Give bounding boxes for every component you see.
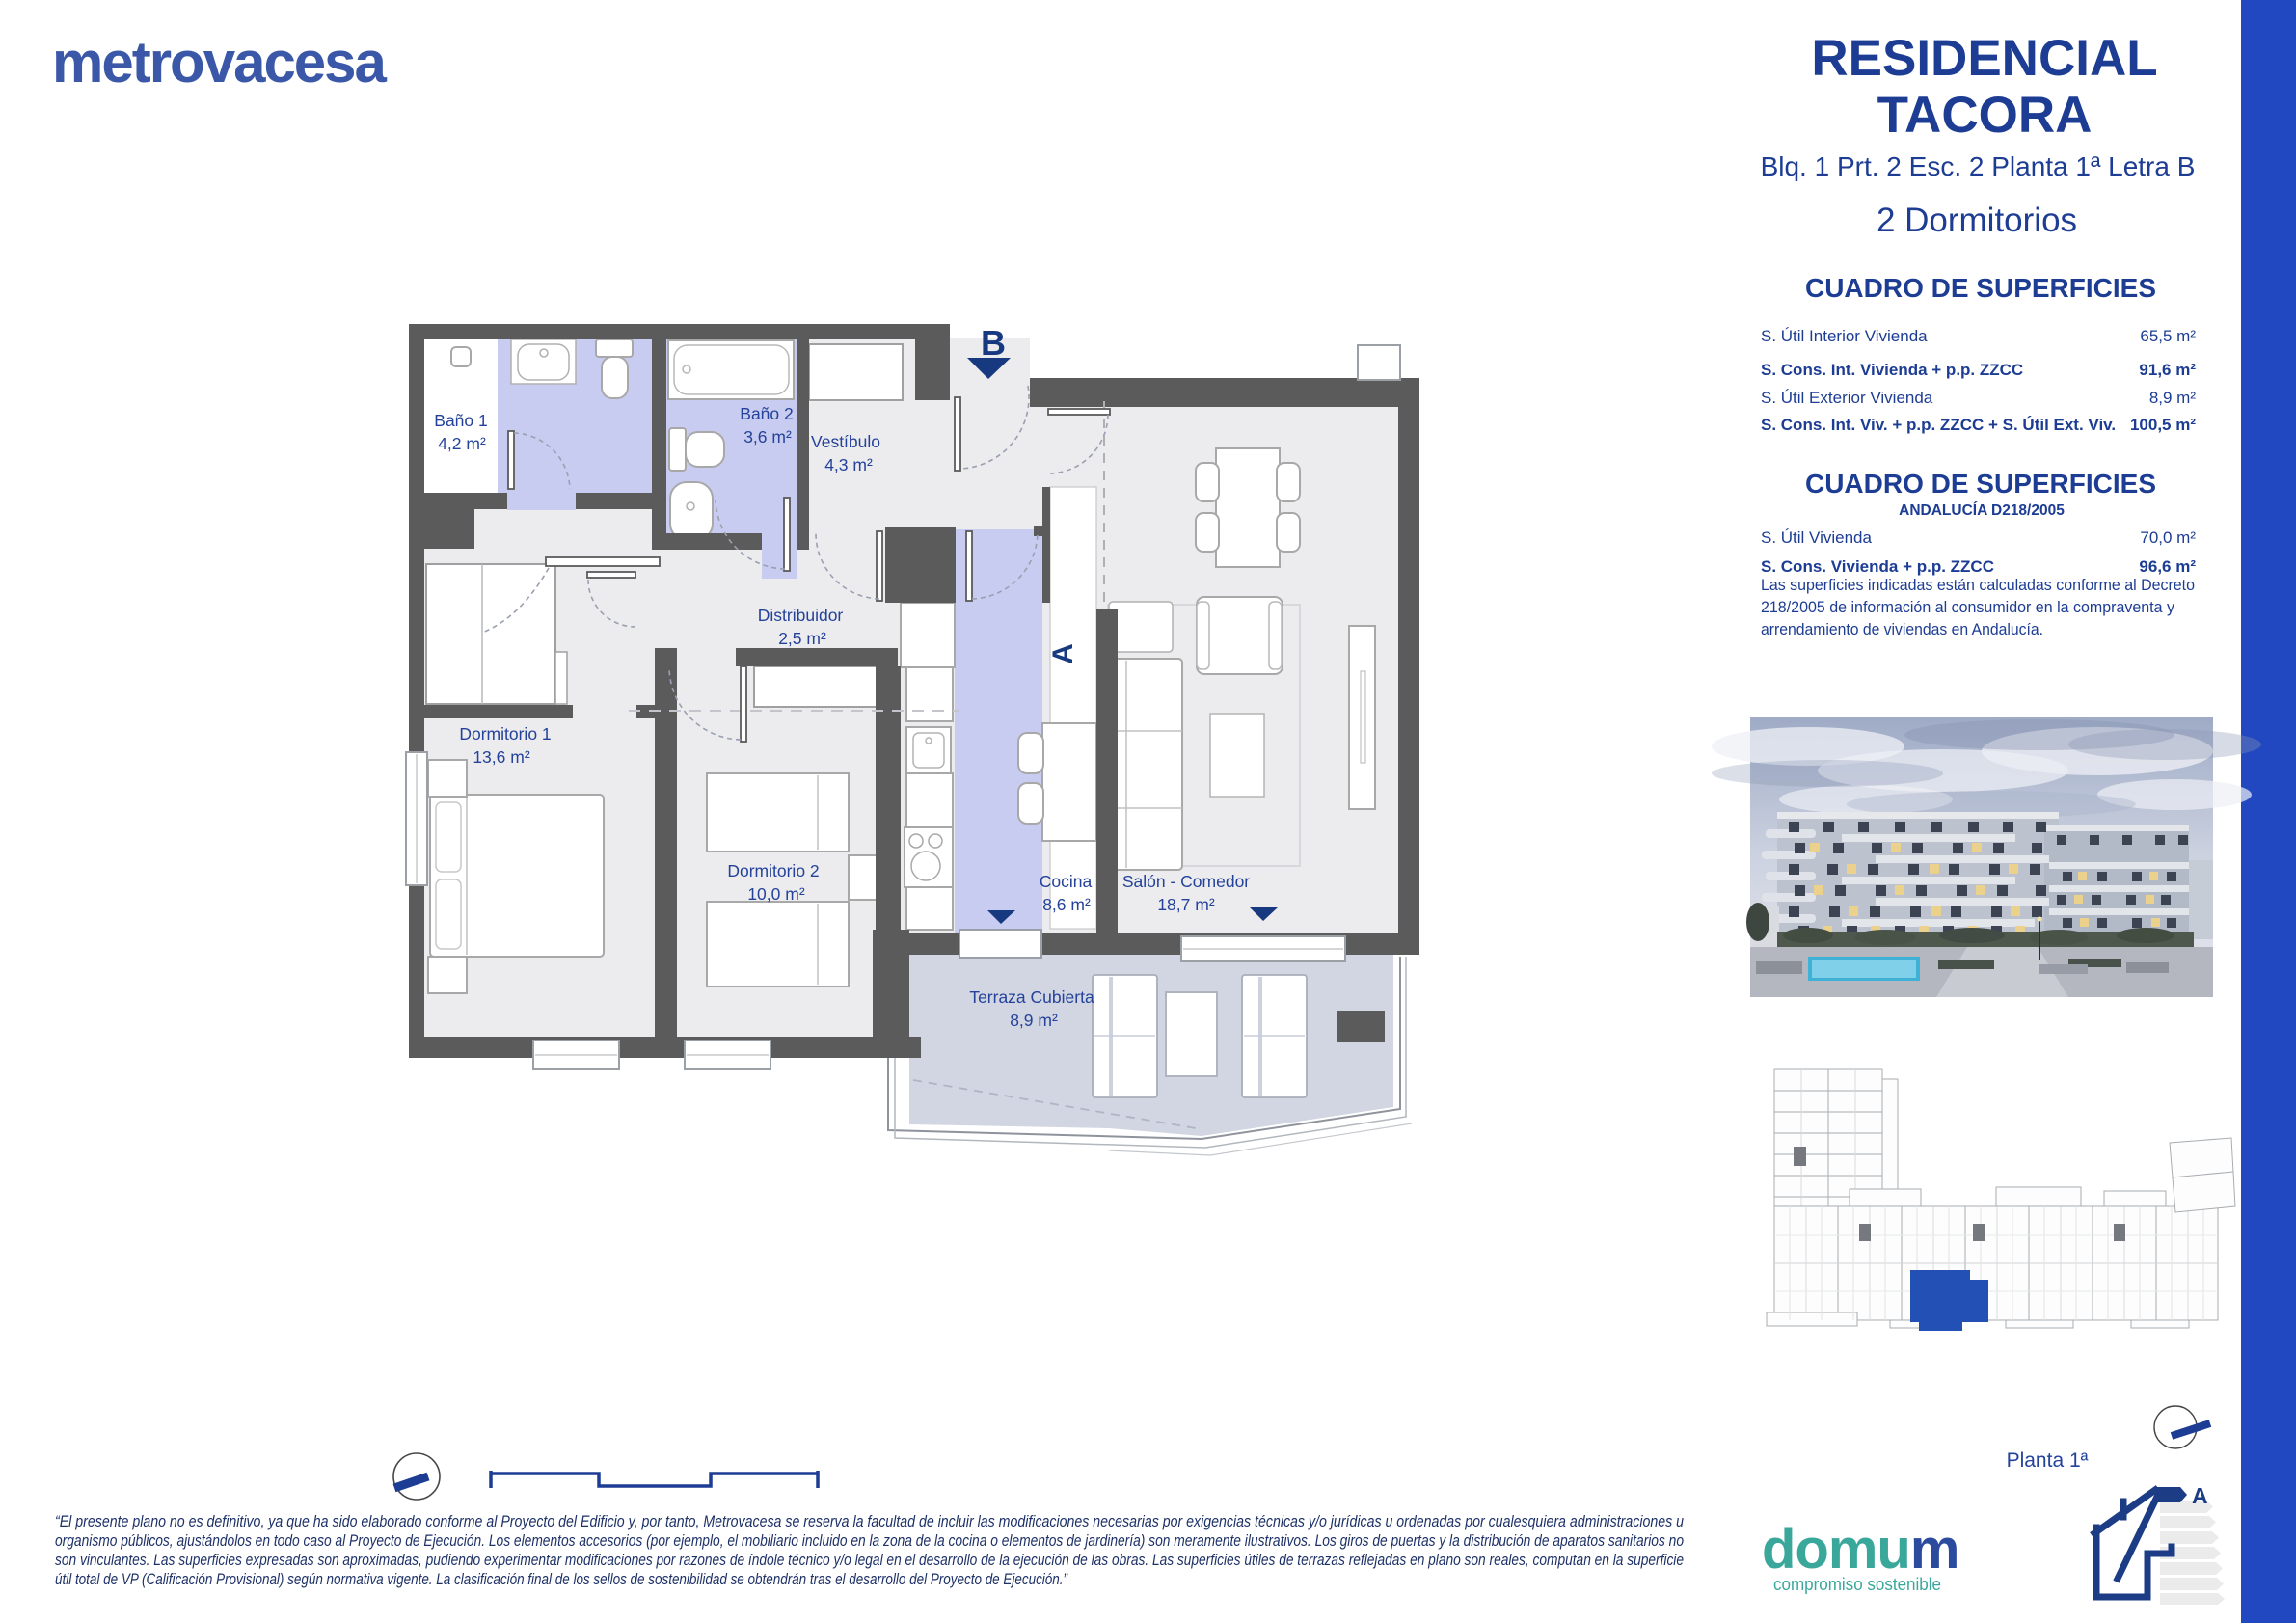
- svg-text:13,6 m²: 13,6 m²: [473, 747, 529, 767]
- svg-text:domum: domum: [1762, 1518, 1958, 1581]
- svg-text:2 Dormitorios: 2 Dormitorios: [1877, 202, 2077, 239]
- svg-text:B: B: [981, 323, 1006, 363]
- svg-text:8,9 m²: 8,9 m²: [1010, 1011, 1058, 1030]
- svg-text:S. Útil Interior Vivienda: S. Útil Interior Vivienda: [1761, 327, 1928, 345]
- svg-text:Terraza Cubierta: Terraza Cubierta: [969, 987, 1094, 1007]
- svg-text:Baño 1: Baño 1: [434, 411, 487, 430]
- svg-text:96,6 m²: 96,6 m²: [2139, 557, 2196, 576]
- svg-text:Planta 1ª: Planta 1ª: [2007, 1449, 2089, 1472]
- svg-text:ANDALUCÍA D218/2005: ANDALUCÍA D218/2005: [1899, 502, 2065, 519]
- svg-text:“El presente plano no es defin: “El presente plano no es definitivo, ya …: [55, 1513, 1684, 1530]
- svg-text:218/2005 de información al con: 218/2005 de información al consumidor en…: [1761, 598, 2174, 616]
- svg-text:Dormitorio 2: Dormitorio 2: [727, 861, 819, 880]
- svg-text:S. Útil Exterior Vivienda: S. Útil Exterior Vivienda: [1761, 389, 1933, 407]
- svg-text:A: A: [1047, 643, 1079, 664]
- svg-text:TACORA: TACORA: [1877, 87, 2093, 144]
- svg-text:S. Cons. Int. Vivienda + p.p.: S. Cons. Int. Vivienda + p.p. ZZCC: [1761, 361, 2023, 379]
- svg-text:18,7 m²: 18,7 m²: [1157, 895, 1214, 914]
- svg-text:útil total de VP (Calificación: útil total de VP (Calificación Provision…: [55, 1571, 1068, 1588]
- svg-text:A: A: [2192, 1483, 2208, 1508]
- svg-text:Cocina: Cocina: [1040, 872, 1093, 891]
- svg-text:10,0 m²: 10,0 m²: [747, 884, 804, 904]
- svg-text:Blq. 1 Prt. 2 Esc. 2 Planta 1ª: Blq. 1 Prt. 2 Esc. 2 Planta 1ª Letra B: [1761, 151, 2196, 181]
- svg-text:RESIDENCIAL: RESIDENCIAL: [1811, 30, 2157, 87]
- svg-text:Las superficies indicadas está: Las superficies indicadas están calculad…: [1761, 576, 2195, 594]
- svg-text:S. Cons. Int. Viv. + p.p. ZZCC: S. Cons. Int. Viv. + p.p. ZZCC + S. Útil…: [1761, 416, 2116, 434]
- svg-text:Salón - Comedor: Salón - Comedor: [1122, 872, 1250, 891]
- svg-text:91,6 m²: 91,6 m²: [2139, 361, 2196, 379]
- svg-text:100,5 m²: 100,5 m²: [2130, 416, 2196, 434]
- svg-text:arrendamiento de viviendas en: arrendamiento de viviendas en Andalucía.: [1761, 620, 2043, 638]
- svg-text:metrovacesa: metrovacesa: [52, 30, 388, 95]
- svg-text:65,5 m²: 65,5 m²: [2140, 327, 2196, 345]
- svg-text:Dormitorio 1: Dormitorio 1: [459, 724, 551, 744]
- svg-text:4,3 m²: 4,3 m²: [824, 455, 873, 474]
- svg-text:S. Útil Vivienda: S. Útil Vivienda: [1761, 528, 1873, 547]
- svg-text:70,0 m²: 70,0 m²: [2140, 528, 2196, 547]
- svg-text:CUADRO DE SUPERFICIES: CUADRO DE SUPERFICIES: [1805, 469, 2156, 499]
- svg-text:Distribuidor: Distribuidor: [758, 606, 844, 625]
- svg-text:Vestíbulo: Vestíbulo: [811, 432, 880, 451]
- svg-text:compromiso sostenible: compromiso sostenible: [1773, 1574, 1941, 1594]
- svg-text:3,6 m²: 3,6 m²: [743, 427, 792, 446]
- svg-text:4,2 m²: 4,2 m²: [438, 434, 486, 453]
- svg-text:Baño 2: Baño 2: [740, 404, 793, 423]
- svg-text:2,5 m²: 2,5 m²: [778, 629, 826, 648]
- svg-text:S. Cons. Vivienda + p.p. ZZCC: S. Cons. Vivienda + p.p. ZZCC: [1761, 557, 1994, 576]
- svg-text:8,6 m²: 8,6 m²: [1042, 895, 1091, 914]
- svg-text:organismo públicos, ajustándol: organismo públicos, ajustándolos en todo…: [55, 1532, 1684, 1550]
- svg-text:CUADRO DE SUPERFICIES: CUADRO DE SUPERFICIES: [1805, 273, 2156, 303]
- svg-text:son vinculantes. Las superfici: son vinculantes. Las superficies expresa…: [55, 1552, 1684, 1569]
- svg-text:8,9 m²: 8,9 m²: [2149, 389, 2197, 407]
